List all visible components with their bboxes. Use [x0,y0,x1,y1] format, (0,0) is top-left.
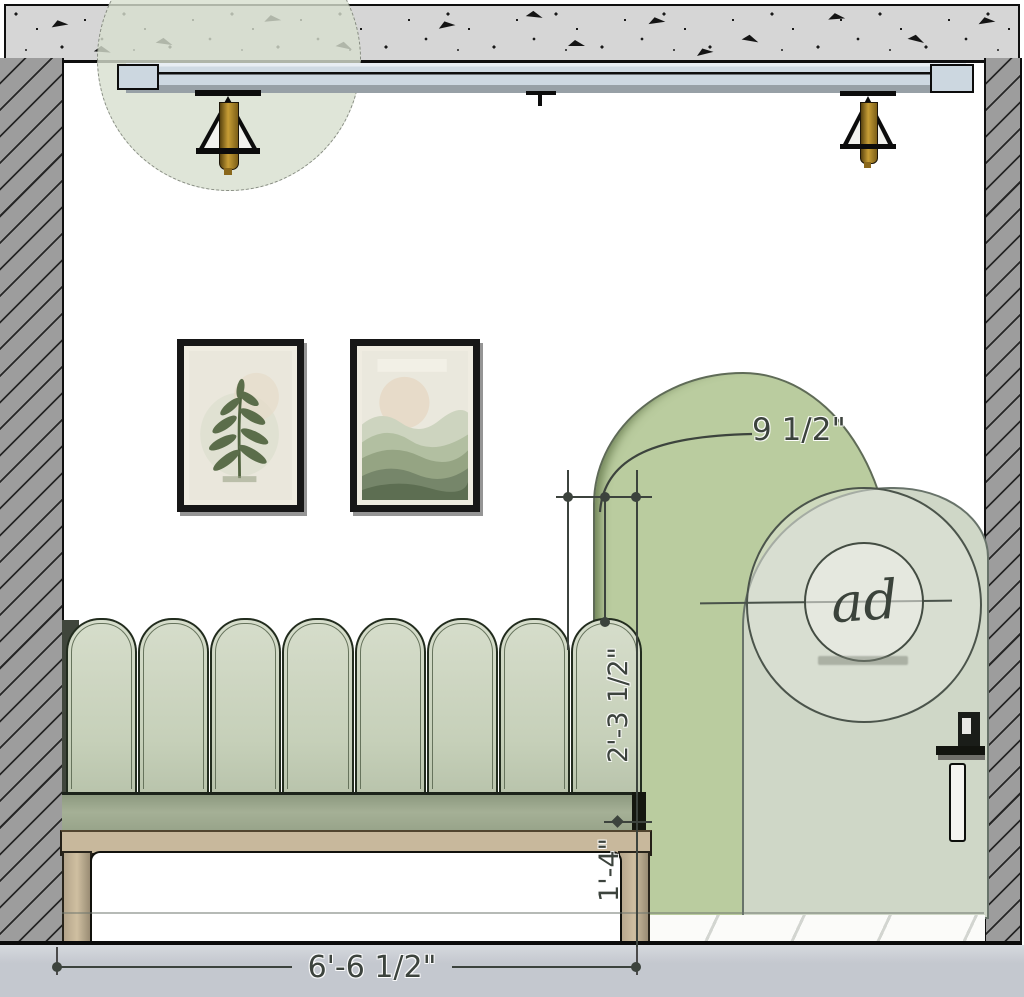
botanical-art [189,351,292,500]
dim-label-bench-width: 6'-6 1/2" [292,950,452,985]
scallop-channel [66,618,137,792]
dim-label-backrest-height: 2'-3 1/2" [603,619,631,791]
logo-monogram-circle: ad [804,542,924,662]
scallop-inner-line [504,623,565,789]
logo-monogram: ad [829,573,899,632]
bracket-notch [962,718,971,734]
dimension-dot [52,962,62,972]
baseboard-marble-strip [593,915,985,942]
aggregate-mark [696,46,714,56]
pendant-canopy [195,90,261,96]
pendant-canopy [840,91,896,96]
scallop-channel [355,618,426,792]
banquette-leg-left [62,851,92,946]
bracket-shadow [938,755,985,760]
dim-label-arch-reveal: 9 1/2" [752,412,846,448]
extension-line [636,470,638,966]
pendant-rim [840,144,896,149]
pendant-rim [196,148,260,154]
dimension-line [452,966,637,968]
aggregate-mark [648,16,666,24]
logo-subtext-blur [818,656,908,665]
aggregate-mark [51,19,69,28]
track-end-cap-right [930,64,974,93]
scallop-inner-line [215,623,276,789]
bulb-icon [219,102,239,170]
door-hinge-bracket [958,712,980,746]
dim-label-seat-height: 1'-4" [594,825,622,915]
scallop-inner-line [432,623,493,789]
bulb-icon [860,102,878,164]
scallop-channel [427,618,498,792]
ceiling-track-beam [126,63,966,93]
under-seat-opening [90,851,622,943]
bulb-tip [224,168,232,175]
scallop-channel [138,618,209,792]
dimension-dot [631,962,641,972]
scallop-channel [282,618,353,792]
scallop-inner-line [71,623,132,789]
aggregate-mark [828,12,845,19]
door-pull-handle [949,763,966,842]
aggregate-mark [438,19,456,28]
dimension-dot [563,492,573,502]
banquette-scallops [66,618,642,792]
track-end-cap-left [117,64,159,90]
ceiling-mount-stem [538,95,542,106]
aggregate-mark [742,34,760,43]
right-wall-section-hatch [984,58,1022,943]
wall-art-botanical-frame [177,339,304,512]
scallop-inner-line [287,623,348,789]
seat-end-shadow [632,792,646,830]
leader-curve [590,400,760,525]
dimension-line [57,966,292,968]
aggregate-mark [568,40,585,46]
bulb-tip [864,162,871,168]
aggregate-mark [526,10,544,18]
scallop-channel [499,618,570,792]
aggregate-mark [908,33,926,43]
scallop-inner-line [143,623,204,789]
bracket-bar [936,746,985,755]
aggregate-mark [978,16,996,25]
banquette-seat-cushion [62,792,646,833]
left-wall-section-hatch [0,58,64,943]
landscape-art [362,351,468,500]
wall-art-landscape-frame [350,339,480,512]
scallop-inner-line [360,623,421,789]
floor-band [0,945,1024,997]
elevation-drawing: ad 9 1/2" 2'-3 1/2" 1'-4" 6'-6 1/2" [0,0,1024,997]
baseboard-line [62,912,984,914]
scallop-channel [210,618,281,792]
